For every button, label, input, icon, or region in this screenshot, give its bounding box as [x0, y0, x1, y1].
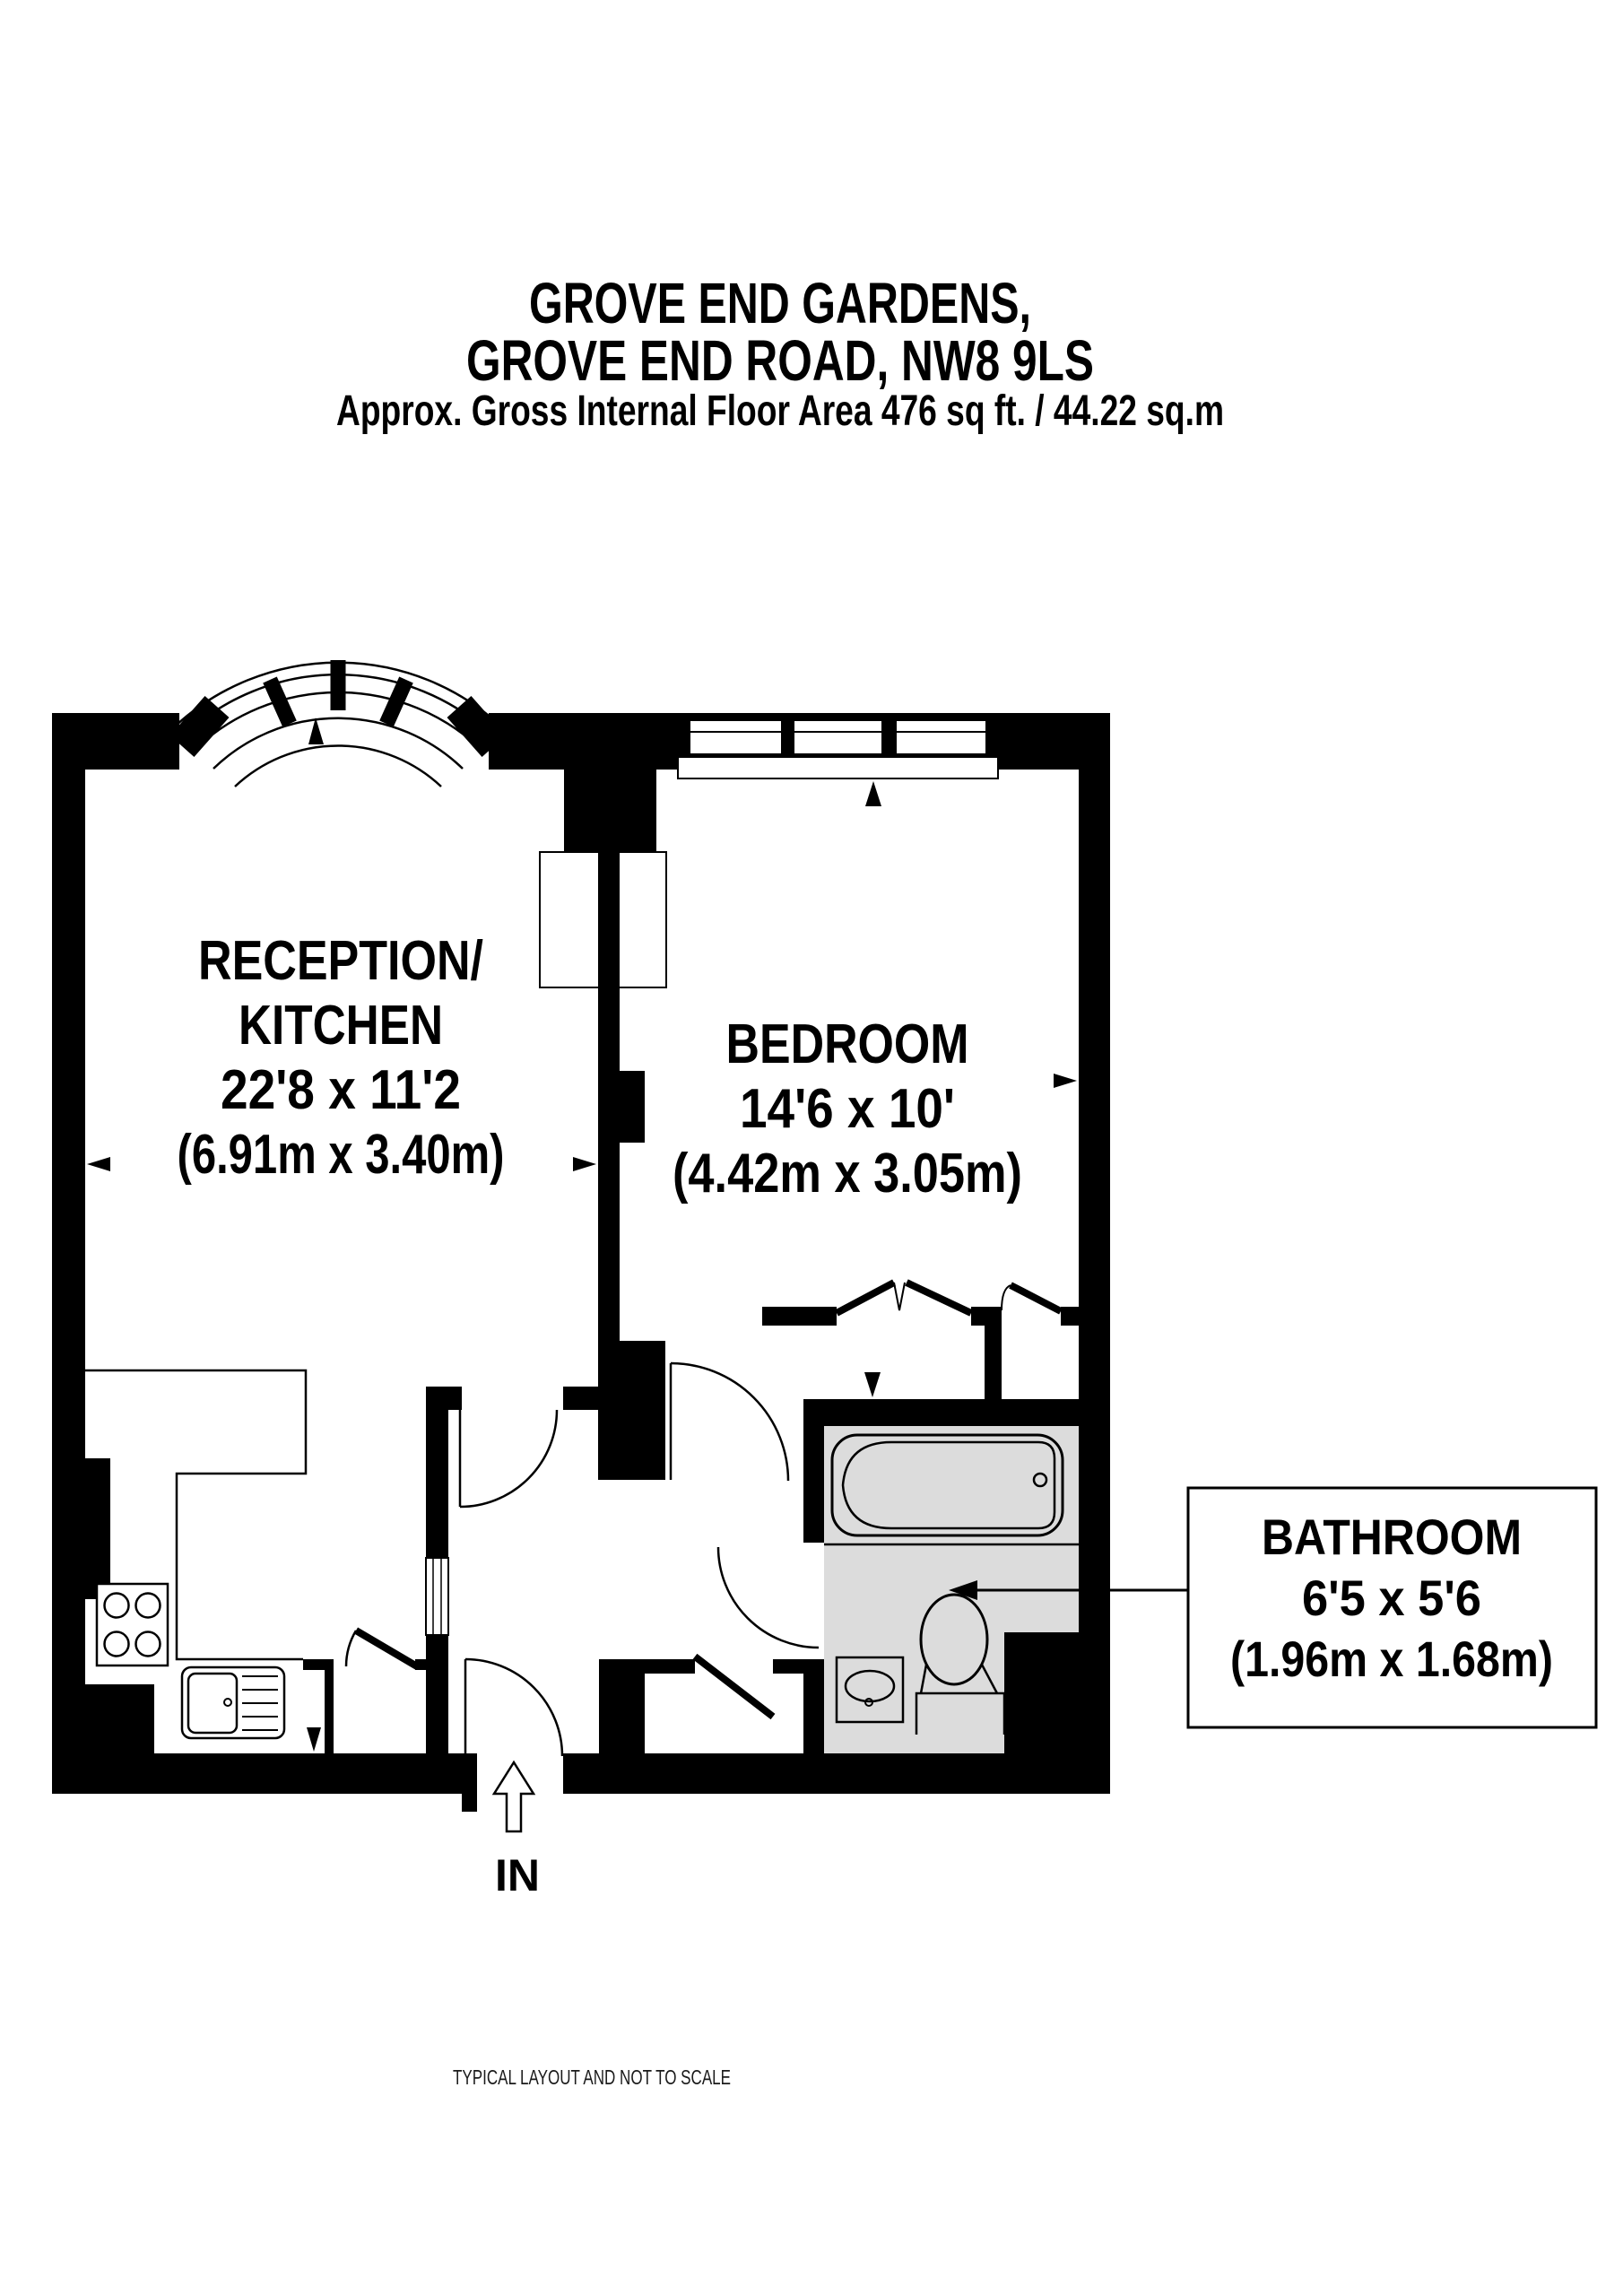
- hob-ring: [105, 1632, 129, 1657]
- footer-disclaimer: TYPICAL LAYOUT AND NOT TO SCALE: [453, 2066, 731, 2089]
- wall-bottom-left: [52, 1753, 462, 1794]
- kitchen-door-leaf: [356, 1631, 417, 1666]
- toilet-bowl: [921, 1595, 987, 1684]
- bedroom-dims-metric: (4.42m x 3.05m): [673, 1143, 1022, 1205]
- bathroom-dims-metric: (1.96m x 1.68m): [1230, 1631, 1553, 1687]
- wardrobe-door-leaf: [837, 1283, 894, 1313]
- dim-arrow-right-icon: [573, 1157, 596, 1171]
- wall-hall-north-right: [563, 1387, 598, 1410]
- wall-closet-west: [599, 1659, 645, 1753]
- wall-kitchen-stub: [325, 1659, 334, 1753]
- wall-divider-through-recess: [598, 852, 620, 987]
- wall-hall-west-lower: [426, 1635, 448, 1753]
- entry-marker: IN: [494, 1762, 540, 1900]
- dim-arrow-right-icon: [1054, 1074, 1077, 1088]
- wall-hall-west-upper: [426, 1387, 448, 1558]
- wall-left-pier: [85, 1458, 110, 1599]
- hob-ring: [136, 1632, 161, 1657]
- wall-bathroom-west: [803, 1426, 824, 1543]
- bedroom-window-pane: [690, 720, 782, 754]
- hall-door-swing: [460, 1410, 557, 1507]
- sink-tap: [224, 1699, 231, 1706]
- bedroom-door-swing: [671, 1363, 788, 1481]
- wall-closet-north-right: [773, 1659, 803, 1674]
- dim-arrow-down-icon: [864, 1372, 881, 1397]
- wall-right: [1079, 713, 1110, 1794]
- reception-label-block: RECEPTION/ KITCHEN 22'8 x 11'2 (6.91m x …: [178, 930, 505, 1186]
- dim-arrow-left-icon: [87, 1157, 110, 1171]
- bay-window-mullion-right: [386, 680, 406, 724]
- hall-hatch: [426, 1558, 448, 1635]
- wall-bottom-right: [563, 1753, 1110, 1794]
- hatch-frame: [426, 1558, 448, 1635]
- wardrobe-door-leaf: [907, 1283, 971, 1313]
- bathroom-door-swing: [718, 1547, 819, 1648]
- title-block: GROVE END GARDENS, GROVE END ROAD, NW8 9…: [336, 271, 1224, 435]
- kitchen-door-swing: [346, 1631, 356, 1666]
- reception-dims-metric: (6.91m x 3.40m): [178, 1124, 505, 1186]
- bay-window-mullion-left: [270, 680, 290, 724]
- wall-wardrobe-jamb: [971, 1307, 1002, 1326]
- wall-entry-step: [462, 1753, 477, 1812]
- dim-arrow-up-icon: [865, 781, 881, 806]
- bay-window-sill-arc: [235, 745, 441, 787]
- wall-bathroom-north: [803, 1399, 1079, 1426]
- reception-dims-imperial: 22'8 x 11'2: [221, 1059, 461, 1121]
- bedroom-window: [678, 720, 998, 778]
- bay-window-cap-left: [182, 707, 217, 746]
- bedroom-dims-imperial: 14'6 x 10': [740, 1078, 955, 1140]
- bath-outer: [832, 1435, 1063, 1535]
- bedroom-window-pane: [794, 720, 882, 754]
- dim-arrow-up-icon: [308, 717, 324, 744]
- wardrobe-door-leaf: [1011, 1285, 1061, 1311]
- floorplan-canvas: GROVE END GARDENS, GROVE END ROAD, NW8 9…: [0, 0, 1623, 2296]
- wardrobe-door-notch: [894, 1283, 905, 1310]
- entry-arrow-icon: [494, 1762, 534, 1831]
- title-line-1: GROVE END GARDENS,: [529, 271, 1031, 335]
- sink-icon: [182, 1667, 284, 1738]
- bedroom-label: BEDROOM: [726, 1013, 969, 1075]
- wardrobe-door-swing-small: [1002, 1285, 1011, 1310]
- bay-window: [175, 660, 501, 787]
- wall-closet-east: [803, 1659, 824, 1753]
- bathroom-dims-imperial: 6'5 x 5'6: [1302, 1570, 1481, 1626]
- reception-label-1: RECEPTION/: [198, 930, 483, 992]
- dim-arrow-down-icon: [307, 1727, 321, 1752]
- wall-bathroom-se-block: [1004, 1632, 1079, 1753]
- entry-label: IN: [495, 1850, 540, 1900]
- wall-divider-bottom-block: [598, 1341, 665, 1480]
- bath-icon: [832, 1435, 1063, 1535]
- hob-icon: [97, 1584, 168, 1665]
- bedroom-window-sill: [678, 757, 998, 778]
- bay-window-cap-right: [459, 707, 494, 746]
- wall-kitchen-door-jamb: [415, 1659, 448, 1670]
- hob-ring: [105, 1594, 129, 1618]
- title-line-2: GROVE END ROAD, NW8 9LS: [466, 328, 1094, 393]
- kitchen-area: [85, 1370, 306, 1738]
- hob-ring: [136, 1594, 161, 1618]
- bathroom-label: BATHROOM: [1262, 1509, 1522, 1565]
- closet-door-leaf: [695, 1657, 773, 1717]
- title-line-3: Approx. Gross Internal Floor Area 476 sq…: [336, 387, 1224, 435]
- bay-window-arc-inner: [213, 718, 463, 769]
- entry-door-swing: [465, 1659, 562, 1756]
- wall-bedroom-south-left: [762, 1307, 837, 1326]
- wall-wardrobe-connector: [985, 1326, 1002, 1399]
- bath-tap: [1034, 1474, 1046, 1486]
- floorplan-page: GROVE END GARDENS, GROVE END ROAD, NW8 9…: [0, 0, 1623, 2296]
- reception-label-2: KITCHEN: [239, 995, 443, 1057]
- wall-corner-block: [52, 1684, 154, 1756]
- bedroom-window-pane: [896, 720, 986, 754]
- wall-bedroom-south-right: [1061, 1307, 1079, 1326]
- wall-left: [52, 713, 85, 1794]
- bedroom-label-block: BEDROOM 14'6 x 10' (4.42m x 3.05m): [673, 1013, 1022, 1205]
